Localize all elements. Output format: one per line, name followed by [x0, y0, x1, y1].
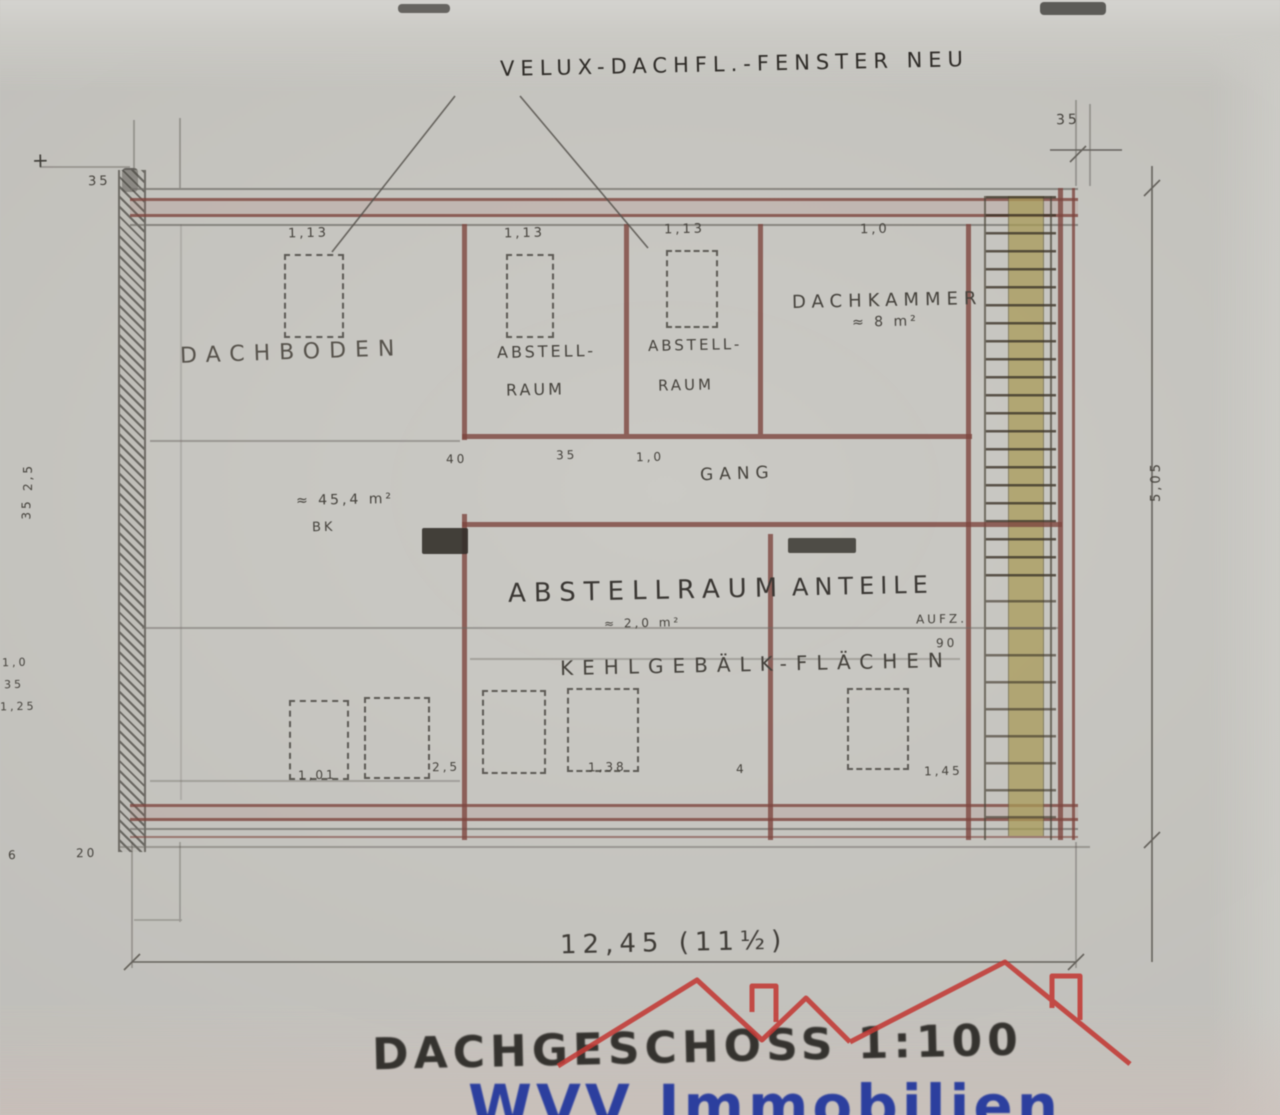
- watermark-text: WVV Immobilien GmbH: [468, 1072, 1280, 1115]
- scanned-drawing: VELUX-DACHFL.-FENSTER NEU DACHBODEN ABST…: [0, 0, 1280, 1115]
- chimney-outline: [752, 986, 776, 1022]
- roofline-left: [558, 980, 850, 1066]
- roofline-logo: [0, 0, 1280, 1115]
- roofline-right: [850, 962, 1130, 1064]
- floorplan-scan-page: VELUX-DACHFL.-FENSTER NEU DACHBODEN ABST…: [0, 0, 1280, 1115]
